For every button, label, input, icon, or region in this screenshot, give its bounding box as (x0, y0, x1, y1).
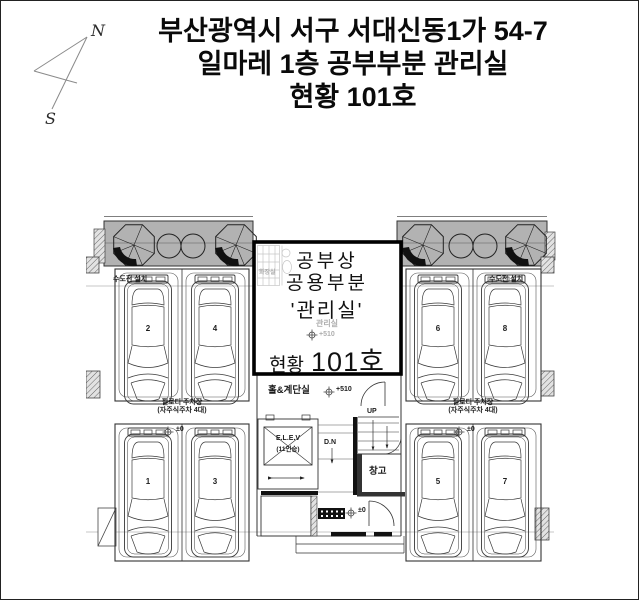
level-label: ±0 (467, 426, 475, 434)
stair-hall-level: +510 (336, 386, 352, 394)
office-room-faint-label: 관리실 (316, 318, 338, 329)
water-tap-label: 수도전 설치 (113, 276, 147, 284)
parking-title: 필로티 주차장 (157, 399, 206, 407)
parking-spot-number: 6 (436, 324, 440, 333)
car-icon (415, 428, 462, 557)
car-icon (482, 275, 529, 404)
title-line-building: 일마레 1층 공부부분 관리실 (93, 48, 613, 81)
scanned-floor-plan-page: N S 부산광역시 서구 서대신동1가 54-7 일마레 1층 공부부분 관리실… (0, 0, 639, 600)
page-title: 부산광역시 서구 서대신동1가 54-7 일마레 1층 공부부분 관리실 현황 … (93, 15, 613, 114)
office-level-faint: +510 (319, 331, 335, 339)
parking-spot-number: 4 (213, 324, 217, 333)
level-marker-icon (346, 508, 357, 519)
right-planter-strip (397, 217, 555, 267)
parking-spot-number: 1 (146, 477, 150, 486)
storage-label: 창고 (369, 467, 386, 477)
parking-spot-number: 5 (436, 477, 440, 486)
level-label: ±0 (176, 426, 184, 434)
compass-south-label: S (45, 109, 56, 128)
parking-spot-number: 3 (213, 477, 217, 486)
stairs (332, 417, 399, 495)
stair-landing (318, 425, 357, 492)
left-parking-block (115, 269, 249, 561)
elevator-label: E.L.E.V (276, 435, 300, 443)
car-icon (192, 428, 239, 557)
floor-plan: 수도전 설치 필로티 주차장 (자주식주차 4대) ±0 2 4 1 3 수도전… (86, 196, 564, 599)
level-marker-icon (324, 387, 335, 398)
stair-hall-label: 홀&계단실 (268, 386, 310, 396)
water-tap-label: 수도전 설치 (489, 276, 523, 284)
parking-spot-number: 8 (503, 324, 507, 333)
right-parking-block (406, 269, 541, 561)
vestibule (261, 491, 318, 536)
status-prefix: 현황 (269, 350, 304, 377)
car-icon (415, 275, 462, 404)
down-label: D.N (324, 439, 336, 447)
entrance-mat (318, 508, 345, 519)
parking-subtitle: (자주식주차 4대) (448, 407, 497, 415)
elevator-capacity-label: (11인승) (276, 443, 299, 453)
left-planter-strip (94, 217, 256, 267)
office-status-line: 현황 101호 (269, 340, 385, 379)
parking-area-label: 필로티 주차장 (자주식주차 4대) (157, 399, 206, 415)
status-number: 101호 (311, 340, 385, 379)
office-text-common: 공용부분 (286, 268, 368, 295)
title-line-address: 부산광역시 서구 서대신동1가 54-7 (93, 15, 613, 48)
parking-spot-number: 2 (146, 324, 150, 333)
bathroom-label: 화장실 (259, 267, 276, 276)
door-arc (369, 501, 394, 526)
car-icon (482, 428, 529, 557)
door-arc (384, 437, 401, 454)
parking-area-label: 필로티 주차장 (자주식주차 4대) (448, 399, 497, 415)
hall-core (257, 374, 404, 553)
parking-subtitle: (자주식주차 4대) (157, 407, 206, 415)
entrance-level-label: ±0 (358, 507, 366, 515)
car-icon (125, 275, 172, 404)
title-line-unit: 현황 101호 (93, 81, 613, 114)
parking-spot-number: 7 (503, 477, 507, 486)
door-arc (361, 382, 385, 406)
car-icon (192, 275, 239, 404)
entrance (318, 508, 357, 520)
car-icon (125, 428, 172, 557)
up-label: UP (367, 408, 377, 416)
parking-title: 필로티 주차장 (448, 399, 497, 407)
